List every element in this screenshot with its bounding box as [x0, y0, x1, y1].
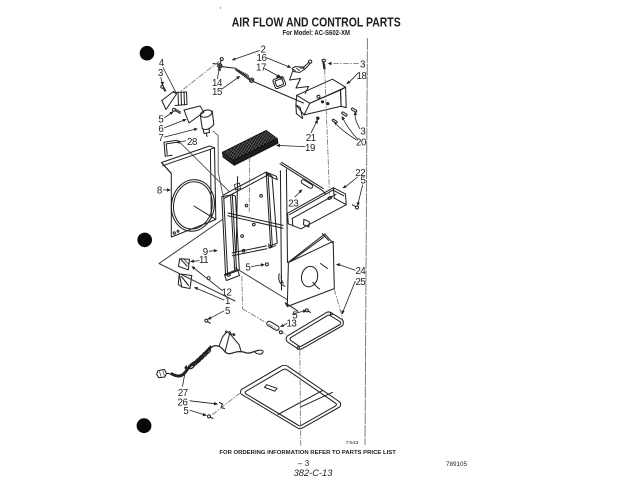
svg-text:5: 5	[245, 262, 250, 273]
svg-text:789105: 789105	[446, 461, 468, 468]
svg-text:– 3: – 3	[298, 459, 310, 468]
svg-text:28: 28	[187, 137, 197, 148]
svg-text:3: 3	[360, 127, 365, 138]
svg-text:382-C-13: 382-C-13	[294, 468, 334, 478]
svg-text:For Model: AC-S602-XM: For Model: AC-S602-XM	[282, 28, 350, 37]
svg-text:7343: 7343	[346, 440, 359, 446]
svg-text:5: 5	[361, 176, 366, 187]
svg-text:18: 18	[357, 71, 367, 82]
svg-text:3: 3	[158, 68, 163, 79]
svg-text:25: 25	[355, 277, 365, 288]
svg-text:19: 19	[305, 143, 315, 154]
svg-text:5: 5	[183, 406, 188, 417]
svg-text:8: 8	[157, 186, 162, 197]
svg-text:15: 15	[212, 87, 222, 98]
svg-text:5: 5	[225, 306, 230, 317]
svg-text:5: 5	[292, 310, 297, 321]
svg-text:7: 7	[158, 133, 163, 144]
svg-text:11: 11	[199, 255, 208, 266]
svg-text:3: 3	[360, 59, 365, 70]
svg-text:24: 24	[355, 266, 366, 277]
svg-text:FOR ORDERING INFORMATION REFER: FOR ORDERING INFORMATION REFER TO PARTS …	[219, 450, 396, 456]
